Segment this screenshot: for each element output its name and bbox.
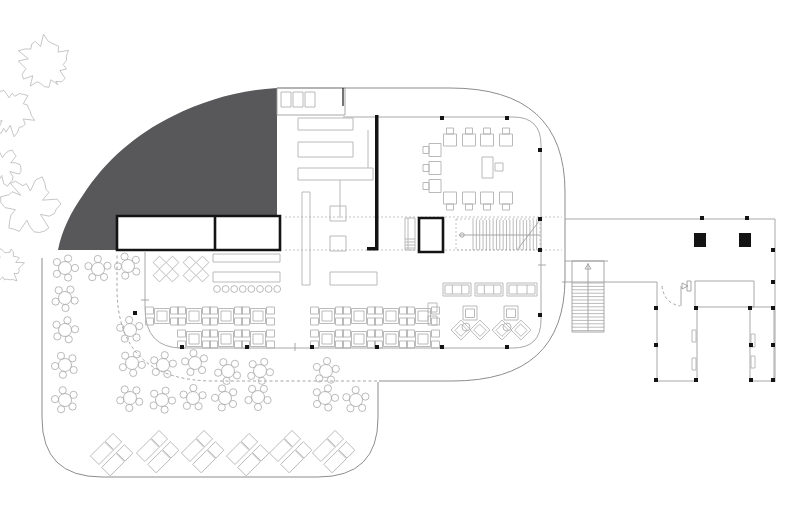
bar-stool [274, 286, 281, 293]
dining-table-group [375, 307, 408, 325]
column-dot [694, 378, 698, 382]
bar-stool [257, 286, 264, 293]
column-dot [654, 306, 658, 310]
column-dot [771, 343, 775, 347]
round-table-group [51, 387, 77, 413]
round-table-group [117, 316, 143, 342]
dining-table-group [178, 307, 211, 325]
lounge-cluster [451, 306, 490, 340]
bar-stool [248, 286, 255, 293]
column-dot [440, 116, 444, 120]
entry-strip [277, 88, 345, 115]
round-table-group [53, 255, 78, 281]
conference-chair [423, 144, 441, 157]
dining-tables [146, 307, 440, 348]
conference-room [423, 128, 513, 210]
column-dot [133, 311, 137, 315]
round-table-group [248, 358, 274, 384]
round-table-group [245, 385, 271, 410]
kitchen-area [298, 118, 373, 285]
sun-lounger-pair [269, 430, 311, 472]
round-table-group [211, 385, 236, 411]
armchair [511, 320, 531, 340]
conference-chair [481, 128, 494, 146]
tree-icon [1, 177, 61, 233]
bench-seat [475, 283, 503, 296]
kitchen-wall-foot [367, 247, 378, 251]
bar-counter [213, 272, 280, 282]
main-stair [456, 219, 540, 250]
black-walled-rooms [117, 216, 280, 250]
round-table-group [150, 387, 176, 413]
column-dot [694, 306, 698, 310]
diamond-seat-group [183, 256, 209, 282]
kitchen-dividing-wall [375, 115, 379, 250]
round-table-group [182, 350, 208, 376]
bar-area [213, 254, 281, 292]
column-dot [771, 306, 775, 310]
dining-table-group [343, 307, 376, 325]
column-dot [748, 306, 752, 310]
round-table-group [343, 386, 369, 411]
round-table-group [52, 286, 78, 312]
conference-chair [423, 180, 441, 193]
sun-lounger-pair [312, 430, 354, 472]
column-dot [745, 216, 749, 220]
column-dot [749, 378, 753, 382]
round-table-group [151, 352, 177, 378]
dining-table-group [242, 307, 275, 325]
dining-table-group [146, 307, 179, 325]
structural-column [694, 233, 706, 247]
dining-table-group [407, 330, 440, 348]
column-dot [505, 345, 509, 349]
structural-column [739, 233, 751, 247]
elevator [419, 218, 443, 252]
tree-icon [18, 34, 68, 87]
bar-stool [239, 286, 246, 293]
dining-table-group [375, 330, 408, 348]
column-dot [700, 216, 704, 220]
column-dot [749, 343, 753, 347]
trees [0, 34, 68, 281]
column-dot [375, 345, 379, 349]
round-table-group [180, 384, 206, 409]
dining-table-group [311, 330, 344, 348]
tree-icon [0, 91, 35, 137]
door-swing [662, 286, 680, 306]
round-table-group [313, 385, 338, 411]
conference-chair [444, 192, 457, 210]
conference-chair [463, 128, 476, 146]
lounge-cluster [492, 306, 531, 340]
armchair [463, 306, 477, 320]
round-table-group [51, 352, 77, 378]
column-dot [654, 378, 658, 382]
armchair [504, 306, 518, 320]
round-table-group [114, 253, 139, 279]
column-dot [245, 345, 249, 349]
column-dot [654, 343, 658, 347]
column-dot [771, 248, 775, 252]
column-dot [771, 280, 775, 284]
entry-steps [405, 218, 415, 250]
column-dot [310, 345, 314, 349]
column-dot [180, 345, 184, 349]
conference-chair [423, 162, 441, 175]
conference-chair [500, 128, 513, 146]
column-dot [538, 313, 542, 317]
round-table-group [313, 357, 339, 383]
sun-lounger-pair [181, 430, 223, 472]
column-dot [538, 217, 542, 221]
sun-lounger-pair [90, 433, 132, 475]
wing-stair [572, 261, 604, 332]
bar-back-counter [213, 254, 280, 262]
sun-loungers [90, 430, 354, 475]
bench-seat [507, 283, 537, 296]
armchair [470, 320, 490, 340]
lounge-area [428, 303, 531, 340]
tree-icon [0, 249, 25, 282]
diamond-seat-groups [153, 256, 209, 282]
conference-chair [463, 192, 476, 210]
bar-stool [265, 286, 272, 293]
round-table-group [53, 317, 79, 343]
conference-chair [444, 128, 457, 146]
sun-lounger-pair [226, 433, 268, 475]
round-table-group [117, 386, 143, 412]
dining-table-group [210, 330, 243, 348]
column-dot [538, 248, 542, 252]
column-dot [538, 148, 542, 152]
dining-table-group [343, 330, 376, 348]
bench-seats [443, 283, 537, 296]
sun-lounger-pair [136, 430, 178, 472]
dining-table-group [210, 307, 243, 325]
diamond-seat-group [153, 256, 179, 282]
floor-plan-stage [0, 0, 800, 525]
column-dot [505, 116, 509, 120]
terrace-outline [42, 258, 378, 477]
tree-icon [0, 150, 21, 186]
lectern [482, 157, 493, 178]
column-dot [771, 378, 775, 382]
conference-chair [500, 192, 513, 210]
dining-table-group [311, 307, 344, 325]
column-dot [440, 345, 444, 349]
bar-stool [222, 286, 229, 293]
round-table-group [119, 351, 145, 377]
bar-stool [214, 286, 221, 293]
bar-stool [231, 286, 238, 293]
right-wing [562, 219, 775, 382]
bench-seat [443, 283, 471, 296]
floor-plan-canvas [0, 0, 800, 525]
buffet-counter [330, 272, 377, 285]
round-table-group [85, 255, 111, 280]
conference-chair [481, 192, 494, 210]
